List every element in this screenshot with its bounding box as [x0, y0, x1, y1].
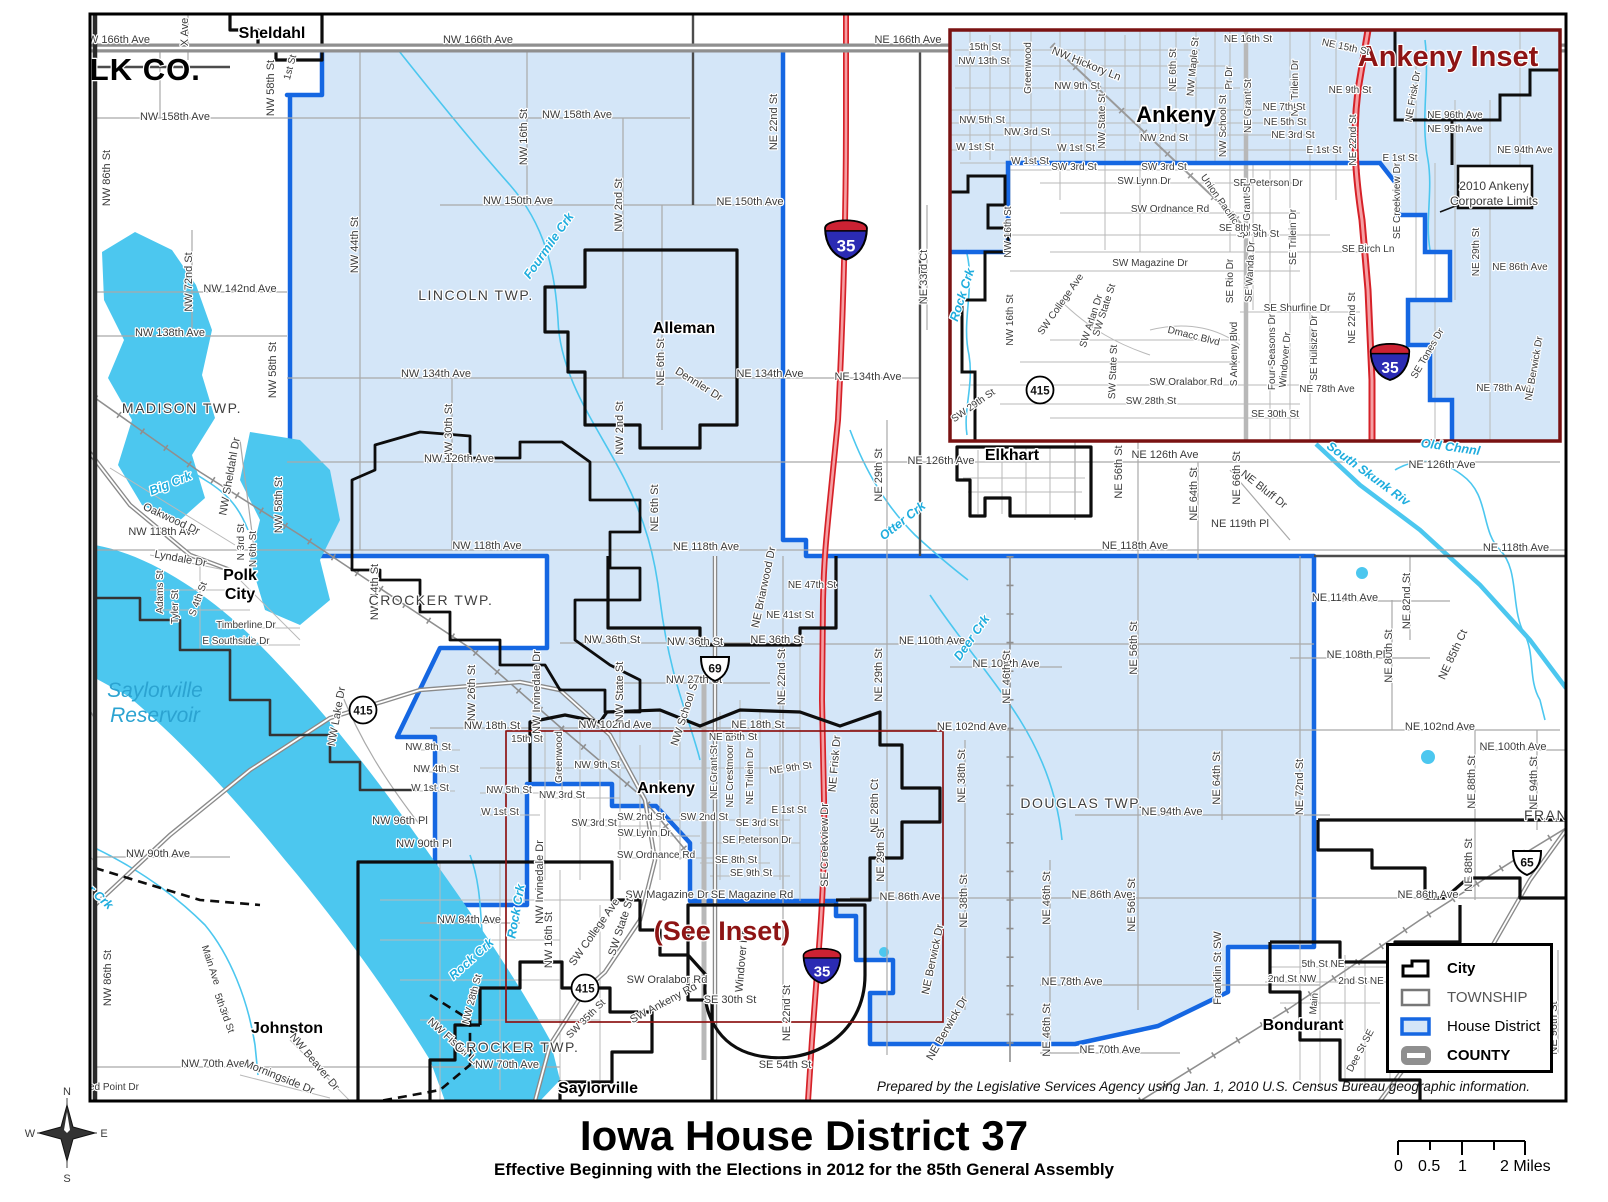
map-label: NE 6th St: [655, 338, 667, 385]
map-label: NW 90th Pl: [396, 838, 452, 850]
scale-label-05: 0.5: [1418, 1158, 1440, 1176]
map-label: NW 16th St: [1003, 206, 1014, 257]
city-symbol-icon: [1399, 958, 1439, 980]
map-label: SE Rio Dr: [1225, 258, 1236, 303]
map-label: NE 38th St: [956, 749, 968, 802]
map-label: NW 36th St: [667, 636, 723, 648]
map-label: NE 29th St: [1471, 228, 1482, 277]
scale-label-0: 0: [1394, 1158, 1403, 1176]
map-label: NE 18th St: [731, 719, 784, 731]
map-label: Reservoir: [110, 704, 201, 727]
map-label: NW 90th Ave: [126, 848, 190, 860]
svg-text:415: 415: [53, 654, 73, 666]
map-label: NW Irvinedale Dr: [531, 650, 543, 734]
svg-text:415: 415: [1030, 386, 1050, 398]
map-label: NE 86th Ave: [1072, 889, 1133, 901]
map-label: NE 94th Ave: [1142, 806, 1203, 818]
legend-label-house-district: House District: [1439, 1018, 1540, 1035]
map-label: 2nd St NW: [1268, 974, 1317, 985]
map-label: NE 108th Pl: [1327, 649, 1386, 661]
map-label: N 3rd St: [236, 523, 247, 560]
map-label: SW Magazine Dr: [1112, 258, 1188, 269]
map-label: SE Magazine Rd: [711, 889, 794, 901]
map-label: NE 126th Ave: [1131, 449, 1198, 461]
map-label: W 1st St: [411, 783, 449, 794]
legend-label-city: City: [1439, 960, 1475, 977]
map-label: NE 6th St: [649, 484, 661, 531]
map-label: NE 134th Ave: [736, 368, 803, 380]
map-label: NW 13th St: [958, 56, 1009, 67]
map-label: NW 5th St: [486, 785, 532, 796]
map-label: Pr Dr: [1224, 66, 1235, 90]
map-label: NE 110th Ave: [899, 635, 965, 647]
map-label: E 1st St: [1306, 145, 1341, 156]
map-label: NE 22nd St: [1347, 292, 1358, 343]
map-label: NW Irvinedale Dr: [534, 840, 546, 924]
map-label: SW Lynn Dr: [617, 828, 671, 839]
map-label: SE Trilein Dr: [1288, 208, 1299, 265]
map-label: W 1st St: [481, 807, 519, 818]
map-label: NW 158th Ave: [542, 109, 612, 121]
map-label: NE 38th St: [958, 874, 970, 927]
map-label: NW State St: [1097, 93, 1108, 148]
svg-text:35: 35: [1381, 360, 1399, 377]
map-label: NE 29th St: [875, 828, 887, 881]
map-label: NE 22nd St: [1348, 114, 1359, 165]
map-label: POLK CO.: [43, 52, 201, 87]
map-label: NW 95th Ct: [44, 1043, 56, 1100]
map-label: SW Ordnance Rd: [1131, 204, 1209, 215]
map-label: NW 86th St: [102, 950, 114, 1006]
map-label: NE 41st St: [766, 610, 814, 621]
map-label: Main: [1308, 993, 1321, 1016]
map-label: NW 8th St: [405, 742, 451, 753]
svg-text:415: 415: [575, 984, 595, 996]
map-label: NW 5th St: [959, 115, 1005, 126]
map-label: NE 96th Ave: [1427, 110, 1483, 121]
map-label: SW Oralabor Rd: [627, 974, 708, 986]
svg-text:415: 415: [353, 706, 373, 718]
map-label: NW 118th Ave: [452, 540, 521, 552]
credits-note: Prepared by the Legislative Services Age…: [770, 1079, 1530, 1094]
map-label: NE 118th Ave: [673, 541, 739, 553]
map-label: NE 64th St: [1211, 751, 1223, 804]
map-label: NE 56th St: [1128, 621, 1140, 674]
map-label: 15th St: [969, 42, 1001, 53]
county-symbol-icon: [1399, 1044, 1439, 1068]
map-label: NW School St: [1218, 95, 1229, 157]
map-label: NE 126th Ave: [1408, 459, 1475, 471]
state-route-415-shield-icon: 415: [350, 697, 377, 724]
legend-item-house-district: House District: [1399, 1012, 1544, 1041]
map-label: SW Ordnance Rd: [617, 850, 695, 861]
map-label: NE 86th Ave: [1398, 889, 1459, 901]
map-label: (See Inset): [654, 916, 791, 946]
map-label: NE 64th St: [1188, 467, 1200, 520]
map-label: Alleman: [653, 320, 715, 337]
map-label: NW 30th St: [443, 404, 455, 460]
map-label: NE 126th Ave: [907, 455, 974, 467]
map-label: NE 33rd Ct: [918, 250, 930, 304]
map-label: NW 134th Ave: [401, 368, 471, 380]
map-label: NW 150th Ave: [483, 195, 553, 207]
svg-text:69: 69: [708, 662, 722, 676]
map-label: NE 70th Ave: [1080, 1044, 1141, 1056]
map-label: NE 47th St: [788, 580, 837, 591]
map-label: SE Hulsizer Dr: [1309, 315, 1320, 381]
map-label: SW 2nd St: [617, 812, 665, 823]
map-label: NE 46th St: [1001, 650, 1013, 703]
map-label: NW 158th Ave: [140, 111, 210, 123]
map-label: NE 166th Ave: [874, 34, 941, 46]
map-label: 2nd St NE: [1338, 976, 1384, 987]
svg-text:65: 65: [1520, 856, 1534, 870]
svg-text:35: 35: [814, 963, 831, 980]
svg-text:415: 415: [20, 386, 40, 398]
map-label: SW 28th St: [1126, 396, 1177, 407]
map-label: Adams St: [155, 570, 166, 614]
map-label: NW 3rd St: [1004, 127, 1050, 138]
map-label: SE 8th St: [1219, 223, 1261, 234]
map-label: SE 54th St: [759, 1059, 812, 1071]
map-label: SE 9th St: [730, 868, 772, 879]
map-label: NE 9th St: [1329, 85, 1372, 96]
map-label: NE Crestmoor Pl: [725, 732, 736, 807]
map-label: SE 30th St: [1251, 409, 1299, 420]
state-route-415-shield-icon: 415: [50, 645, 77, 672]
map-label: NW 2nd St: [614, 401, 626, 454]
map-label: SW 3rd St: [571, 818, 617, 829]
legend-item-township: TOWNSHIP: [1399, 983, 1544, 1012]
map-label: NE 78th Ave: [1299, 384, 1355, 395]
map-label: E 1st St: [1382, 153, 1417, 164]
scale-label-2miles: 2 Miles: [1500, 1158, 1551, 1176]
map-label: NE 28th Ct: [869, 779, 881, 833]
map-label: LINCOLN TWP.: [418, 287, 534, 303]
map-label: Greenwood: [1023, 42, 1034, 94]
map-label: NE 88th St: [1463, 838, 1475, 891]
map-label: NE 56th St: [1126, 878, 1138, 931]
map-label: NW 70th Ave: [181, 1058, 245, 1070]
map-label: Timberline Dr: [216, 620, 276, 631]
map-label: NW 2nd St: [613, 178, 625, 231]
map-label: NW 70th Ave: [475, 1059, 539, 1071]
map-label: NW 72nd St: [183, 252, 195, 311]
map-label: NW 16th St: [1005, 294, 1016, 345]
map-label: NE 118th Ave: [1483, 542, 1549, 554]
map-label: SE Shurfine Dr: [1264, 303, 1331, 314]
map-label: NE 102nd Ave: [937, 721, 1007, 733]
map-label: E 1st St: [771, 805, 806, 816]
map-label: CROCKER TWP.: [369, 592, 494, 608]
map-label: NW 18th St: [464, 720, 520, 732]
map-label: NE 78th Ave: [1042, 976, 1103, 988]
map-label: SE 3rd St: [736, 818, 779, 829]
map-label: Polk: [223, 567, 257, 584]
map-label: SE Peterson Dr: [722, 835, 792, 846]
map-label: NE 88th St: [1466, 755, 1478, 808]
map-label: NE Trilein Dr: [745, 747, 756, 804]
map-label: SE Creekview Dr: [819, 803, 831, 887]
map-label: NW State St: [614, 662, 626, 723]
map-label: NE Grant St: [1243, 79, 1254, 133]
legend-item-city: City: [1399, 954, 1544, 983]
map-label: NE 22nd St: [781, 985, 793, 1041]
map-label: NW 58th St: [265, 60, 277, 116]
map-label: SW 2nd St: [680, 812, 728, 823]
map-label: NE 119th Pl: [1211, 518, 1269, 530]
map-label: NE 134th Ave: [834, 371, 901, 383]
map-label: Wooded Point Dr: [63, 1082, 140, 1093]
map-label: Greenwood: [554, 731, 565, 783]
state-route-415-shield-icon: 415: [572, 975, 599, 1002]
map-label: Four-Seasons Dr: [1267, 313, 1278, 390]
map-label: NE 102nd Ave: [1405, 721, 1475, 733]
map-label: NW 4th St: [413, 764, 459, 775]
map-label: NE 46th St: [1041, 871, 1053, 924]
map-label: NE 6th St: [1168, 48, 1179, 91]
map-label: NW 142nd Ave: [203, 283, 276, 295]
iowa-house-district-map: NW 166th AveNW 166th AveNE 166th AveShel…: [0, 0, 1608, 1202]
map-label: 5th St NE: [1302, 959, 1345, 970]
legend-label-county: COUNTY: [1439, 1047, 1510, 1064]
map-label: NE 86th Ave: [1492, 262, 1548, 273]
map-label: NW 36th St: [584, 634, 640, 646]
map-label: NE 36th St: [750, 634, 803, 646]
map-label: TWP.: [40, 94, 79, 110]
map-label: WP.: [17, 344, 46, 360]
map-label: S Ankeny Blvd: [1229, 322, 1240, 386]
map-label: NW 166th Ave: [443, 34, 513, 46]
map-label: NW 9th St: [574, 760, 620, 771]
map-label: Sheldahl: [239, 25, 306, 42]
map-label: NW 96th Pl: [372, 815, 428, 827]
map-label: NW 58th St: [273, 477, 285, 533]
map-label: NE 72nd St: [1294, 759, 1306, 815]
map-label: NE 94th St: [1528, 756, 1540, 809]
map-label: NW 3rd St: [539, 790, 585, 801]
compass-n: N: [63, 1086, 71, 1098]
legend-label-township: TOWNSHIP: [1439, 989, 1528, 1006]
map-label: NW 44th St: [349, 217, 361, 273]
map-label: Tyler St: [170, 590, 181, 624]
map-label: Ankeny Inset: [1358, 41, 1539, 73]
map-label: NW 138th Ave: [135, 327, 205, 339]
map-label: NE 5th St: [1264, 117, 1307, 128]
map-label: NW 16th St: [518, 109, 530, 165]
page-subtitle: Effective Beginning with the Elections i…: [0, 1160, 1608, 1180]
map-label: Saylorville: [107, 679, 203, 702]
map-label: Franklin St SW: [1212, 931, 1224, 1005]
map-label: Bondurant: [1263, 1017, 1345, 1034]
map-label: NW 93rd St: [59, 790, 71, 847]
svg-text:35: 35: [837, 237, 856, 256]
map-label: SE 30th St: [704, 994, 757, 1006]
map-label: NE 16th St: [1224, 34, 1273, 45]
map-label: NW 126th Ave: [424, 453, 494, 465]
map-legend: City TOWNSHIP House District COUNTY: [1386, 943, 1553, 1073]
legend-item-county: COUNTY: [1399, 1041, 1544, 1070]
map-label: NW 58th St: [267, 342, 279, 398]
map-label: NW 26th St: [466, 665, 478, 721]
map-label: Elkhart: [985, 447, 1040, 464]
map-label: SW Magazine Dr: [625, 889, 708, 901]
map-label: NE 86th Ave: [880, 891, 941, 903]
map-label: W 1st St: [1057, 143, 1095, 154]
map-label: NE 22nd St: [776, 649, 788, 705]
map-label: NE 118th Ave: [1102, 540, 1168, 552]
map-label: NE 95th Ave: [1427, 124, 1483, 135]
house-district-symbol-icon: [1399, 1016, 1439, 1038]
map-label: 2010 Ankeny: [1459, 179, 1528, 193]
map-label: NW 84th Ave: [437, 914, 501, 926]
map-label: NE 7th St: [1263, 102, 1306, 113]
map-label: NE 3rd St: [1271, 130, 1315, 141]
township-symbol-icon: [1399, 987, 1439, 1009]
map-label: City: [225, 586, 255, 603]
map-label: NE 29th St: [873, 448, 885, 501]
map-label: MADISON TWP.: [122, 400, 242, 416]
map-label: 15th St: [511, 734, 543, 745]
map-label: NE 22nd St: [768, 94, 780, 150]
map-label: N 6th St: [248, 531, 259, 567]
map-label: NE 150th Ave: [716, 196, 783, 208]
map-label: NW 86th St: [101, 150, 113, 206]
map-label: X Ave: [179, 18, 191, 47]
map-page: NW 166th AveNW 166th AveNE 166th AveShel…: [0, 0, 1608, 1202]
page-title: Iowa House District 37: [0, 1112, 1608, 1160]
map-label: SE 8th St: [715, 855, 757, 866]
map-label: SW Lynn Dr: [1117, 176, 1171, 187]
map-label: CROCKER TWP.: [455, 1039, 580, 1055]
map-label: NE Grant St: [709, 745, 720, 799]
map-label: NW 9th St: [1054, 81, 1100, 92]
map-label: E Southside Dr: [202, 636, 270, 647]
map-label: NE 82nd St: [1401, 573, 1413, 629]
map-label: NE 46th St: [1041, 1003, 1053, 1056]
map-label: NE 29th St: [873, 648, 885, 701]
map-label: SW State St: [1107, 344, 1120, 399]
map-label: NE 114th Ave: [1312, 592, 1378, 604]
map-label: DOUGLAS TWP.: [1020, 795, 1143, 811]
map-label: NE 100th Ave: [1479, 741, 1546, 753]
map-label: SW Oralabor Rd: [1149, 377, 1222, 388]
map-label: Saylorville: [558, 1080, 638, 1097]
scale-label-1: 1: [1458, 1158, 1467, 1176]
map-label: SW 3rd St: [1141, 162, 1187, 173]
map-label: Corporate Limits: [1450, 194, 1538, 208]
map-label: Johnston: [251, 1020, 323, 1037]
map-label: NW 2nd St: [1140, 133, 1189, 144]
map-label: W 1st St: [956, 142, 994, 153]
map-label: NE 56th St: [1113, 445, 1125, 498]
map-label: W 1st St: [1011, 156, 1049, 167]
map-label: SW 3rd St: [1051, 162, 1097, 173]
map-label: SE Birch Ln: [1342, 244, 1395, 255]
state-route-415-shield-icon: 415: [1027, 377, 1054, 404]
state-route-415-shield-icon: 415: [17, 377, 44, 404]
map-label: NW Rowe Dr: [29, 814, 89, 861]
map-label: NE 94th Ave: [1497, 145, 1553, 156]
map-label: SE Creekview Dr: [1392, 162, 1403, 239]
map-label: Ankeny: [637, 780, 695, 797]
map-label: Ankeny: [1136, 102, 1216, 127]
